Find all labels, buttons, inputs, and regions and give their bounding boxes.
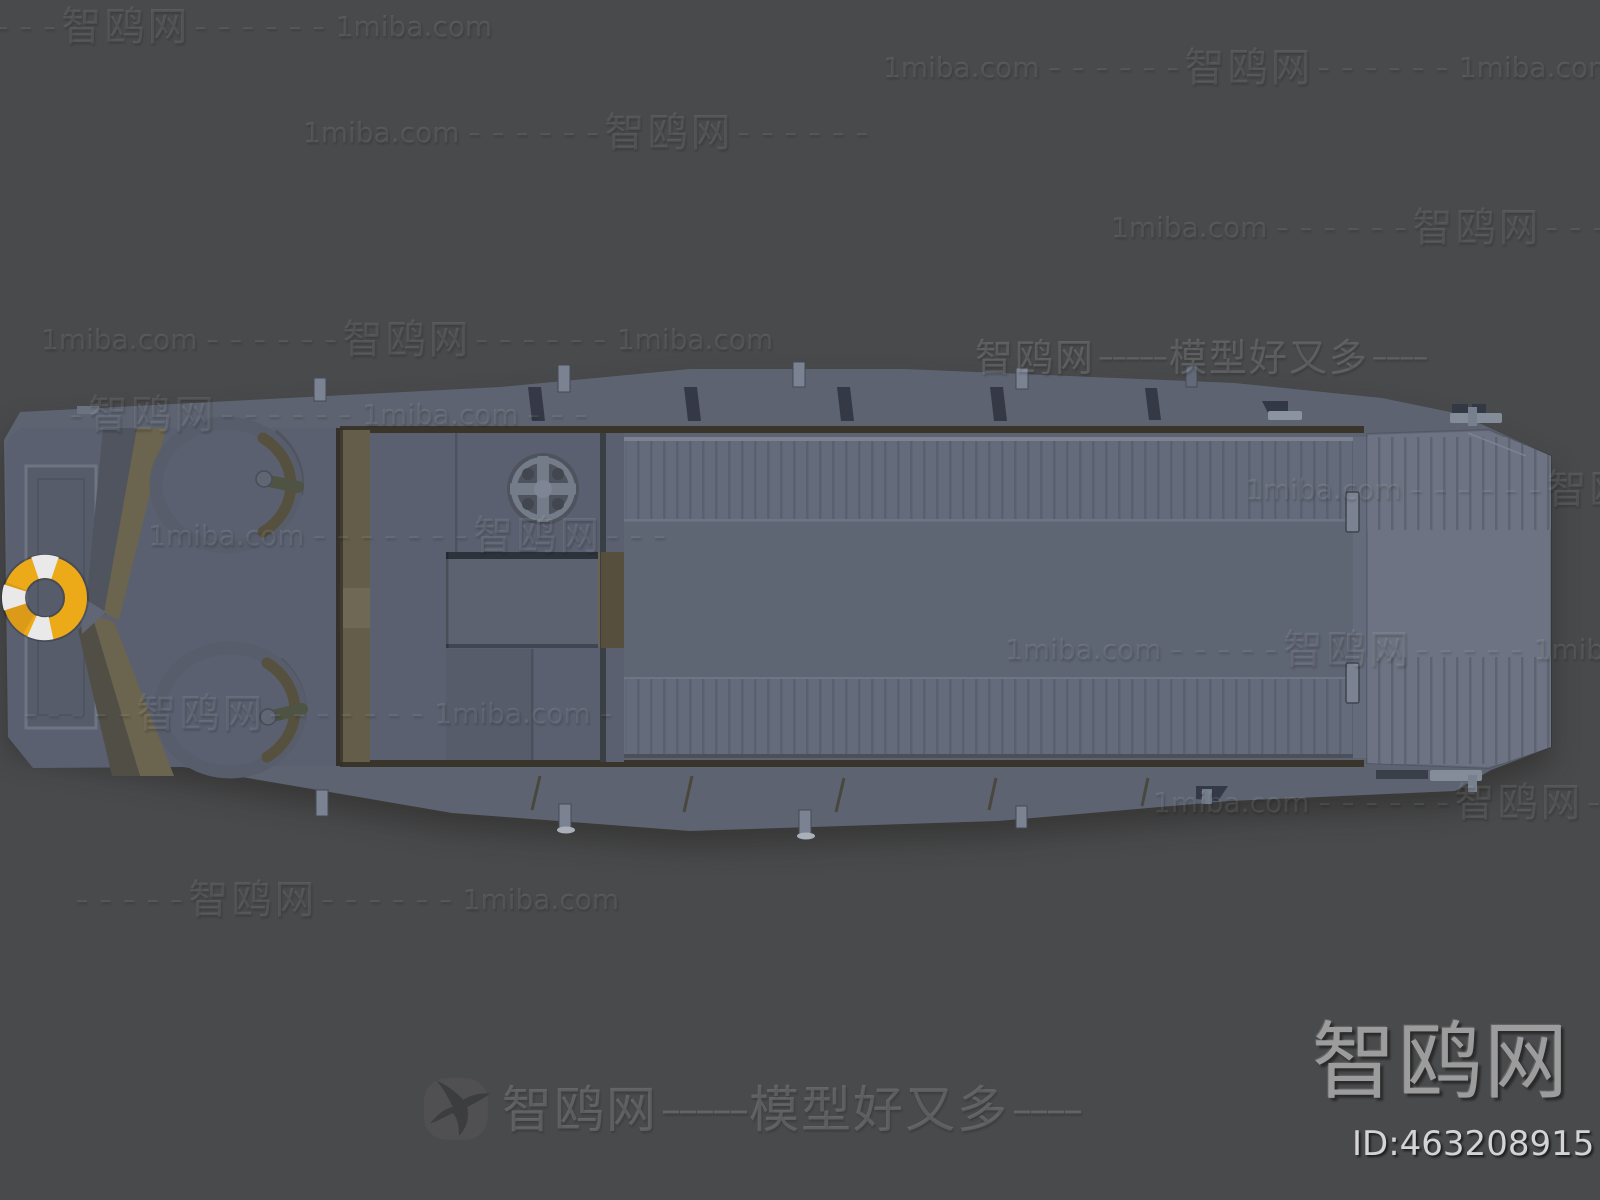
bow-edge-notch [77, 406, 99, 414]
cargo-ribs-bottom [626, 679, 1353, 756]
model-id-badge: ID:463208915 [1352, 1124, 1594, 1164]
model-preview-page: – – – – –智鸥网– – – – – –1miba.com1miba.co… [0, 0, 1600, 1200]
wheelhouse [370, 433, 623, 760]
cabin-box [446, 552, 623, 661]
cargo-center-deck [624, 519, 1353, 679]
deck-seam-bottom [340, 760, 1364, 767]
site-logo-text: 智鸥网 [1312, 1016, 1570, 1108]
wheel-hatch [507, 453, 579, 525]
cargo-bay [624, 437, 1353, 758]
cabin-step [446, 649, 531, 760]
deck-seam-top [340, 426, 1364, 433]
bird-logo-icon [422, 1072, 494, 1144]
stern-ramp [1367, 430, 1551, 768]
cargo-left-wall [600, 433, 624, 762]
bow-divider-wall [340, 430, 370, 762]
cargo-ribs-top [626, 441, 1353, 519]
